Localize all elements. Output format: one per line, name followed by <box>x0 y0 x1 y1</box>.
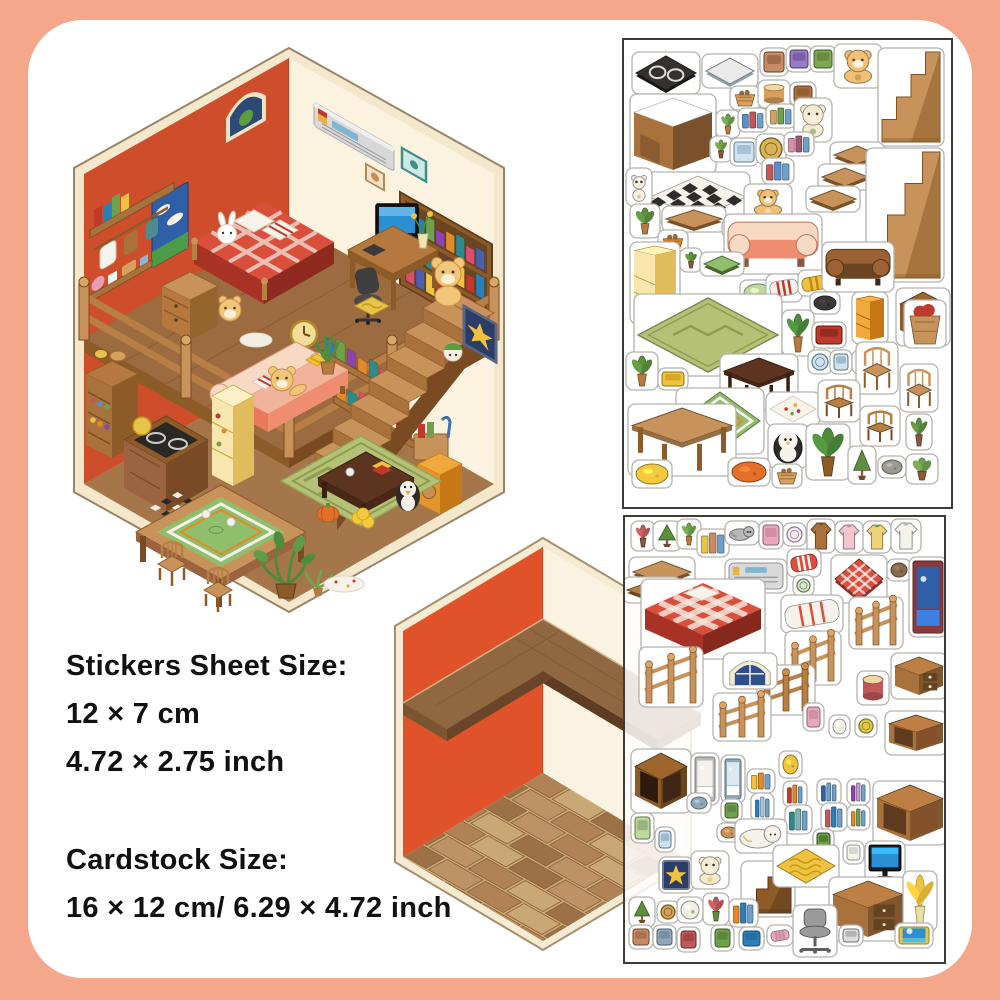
bread <box>95 350 107 358</box>
sticker-girl-sticker <box>691 851 729 889</box>
sticker-red-radio <box>812 322 846 348</box>
frog-hamster <box>444 343 462 361</box>
sticker-drum-stool <box>857 671 889 705</box>
sticker-sheet-2 <box>623 515 946 964</box>
sticker-pink-shirt <box>835 521 863 553</box>
sticker-door-panel <box>721 755 745 803</box>
sticker-kitchen-cabinet <box>630 94 716 174</box>
sticker-vest <box>807 519 835 553</box>
sticker-book-stack <box>766 104 796 128</box>
sticker-sheet-size-inch: 4.72 × 2.75 inch <box>66 746 348 779</box>
sticker-pink-book <box>759 521 783 549</box>
sticker-bunny-doll <box>626 168 652 206</box>
sticker-flower-cup <box>631 521 655 551</box>
sticker-yellow-shirt <box>863 521 891 553</box>
sticker-badge-5 <box>739 927 764 950</box>
sticker-step-plank-3 <box>806 186 860 212</box>
sticker-railing-4 <box>639 646 703 707</box>
sticker-chair-1 <box>856 342 898 394</box>
sticker-long-plank <box>662 206 726 232</box>
sticker-office-chair <box>793 905 837 957</box>
sticker-herb-pot <box>710 136 732 162</box>
sticker-round-badge <box>657 901 679 923</box>
cardstock-size-label: Cardstock Size: <box>66 844 452 877</box>
sticker-badge-4 <box>711 925 734 951</box>
sticker-paper-badge <box>843 841 864 864</box>
sticker-staircase-small <box>878 48 944 146</box>
sticker-pink-books <box>784 132 814 156</box>
sticker-purple-books <box>847 779 870 805</box>
sticker-yellow-cushion <box>632 460 672 488</box>
sticker-railing-1 <box>849 595 903 649</box>
sticker-badge-2 <box>653 925 676 949</box>
sticker-dark-sofa <box>822 242 894 292</box>
sticker-stones <box>878 456 906 478</box>
sticker-pillow-set <box>781 595 843 633</box>
sticker-keyboard-badge <box>839 925 863 946</box>
sticker-chair-2 <box>900 364 938 412</box>
sticker-sheet-size-cm: 12 × 7 cm <box>66 698 348 731</box>
sticker-plant-box <box>906 454 938 484</box>
dining-chair-2 <box>204 568 232 612</box>
sticker-wall-shelf-unit <box>873 781 944 845</box>
yellow-fridge <box>212 385 254 486</box>
sticker-egg <box>829 715 850 738</box>
sticker-duck-badge <box>677 897 703 923</box>
sticker-teddy-bear <box>834 44 882 88</box>
sticker-gray-cat <box>725 521 759 545</box>
floral-blanket <box>324 576 364 592</box>
sticker-badge-3 <box>677 927 700 952</box>
hamster <box>219 296 241 321</box>
sticker-bear-cabinet <box>852 292 888 344</box>
bread-basket <box>110 351 126 361</box>
sticker-green-badge <box>721 799 742 822</box>
sticker-kitchen-sink <box>702 54 758 88</box>
sticker-kitchen-tools <box>730 138 758 166</box>
penguin <box>396 481 420 511</box>
sticker-small-tree <box>848 446 876 484</box>
sticker-glass-jar <box>830 350 852 374</box>
sticker-water-bottle <box>655 827 675 852</box>
sticker-drawer-desk <box>891 653 944 699</box>
sticker-low-bookshelf <box>885 711 944 755</box>
sticker-star-frame <box>659 857 693 893</box>
sticker-yellow-ball <box>855 715 877 737</box>
sticker-planter-box <box>700 252 744 276</box>
sticker-desk-lamp <box>779 751 802 778</box>
sticker-window-poster <box>909 557 944 637</box>
sticker-cube-shelf <box>631 749 691 813</box>
sticker-plant-tall <box>626 352 658 390</box>
sticker-red-books <box>783 781 807 807</box>
sticker-chair-3 <box>818 380 860 422</box>
sticker-leaf-plant <box>806 424 850 480</box>
kettle <box>133 417 151 435</box>
sticker-mini-plant <box>680 248 702 272</box>
sticker-potted-plant <box>630 204 660 238</box>
sticker-coffee-beans <box>810 292 840 314</box>
sticker-pink-jar <box>803 703 824 731</box>
sticker-floral-rug <box>766 392 820 426</box>
sticker-mug-jug <box>808 350 832 374</box>
sticker-mini-tree <box>629 897 655 927</box>
sticker-blue-books-2 <box>751 793 774 821</box>
sticker-mini-books <box>729 899 758 927</box>
sticker-stove-top <box>632 52 700 94</box>
sticker-sheet-size-label: Stickers Sheet Size: <box>66 650 348 683</box>
cardstock-size-value: 16 × 12 cm/ 6.29 × 4.72 inch <box>66 892 452 925</box>
sticker-small-books <box>847 805 870 830</box>
sticker-yellow-books <box>747 769 775 793</box>
page-background: Stickers Sheet Size: 12 × 7 cm 4.72 × 2.… <box>0 0 1000 1000</box>
sticker-jam-jar <box>786 46 812 72</box>
sticker-tea-cup <box>783 523 806 546</box>
sticker-recipe-books <box>738 108 768 132</box>
round-rug <box>240 333 272 347</box>
dresser <box>162 272 218 340</box>
sticker-yellow-book <box>658 368 688 390</box>
sticker-potted-herb <box>906 414 932 450</box>
sticker-book-caddy <box>904 300 946 348</box>
sticker-plant-badge <box>703 893 729 925</box>
sticker-pumpkin <box>728 458 770 486</box>
sticker-teal-books <box>785 805 812 834</box>
sticker-badge-1 <box>629 925 653 949</box>
sticker-blue-books <box>817 779 841 805</box>
sticker-chair-4 <box>860 406 900 446</box>
sticker-snake-plant <box>782 310 814 356</box>
sticker-nut-basket <box>772 464 802 488</box>
sticker-seaside-pic <box>895 923 933 948</box>
sticker-railing-5 <box>713 690 771 741</box>
sticker-bread-basket <box>730 86 760 110</box>
sticker-canned-plant <box>631 813 654 843</box>
sticker-sprout-pot <box>716 110 740 138</box>
sticker-check-pillow <box>787 549 821 577</box>
sticker-green-book <box>810 46 836 72</box>
sticker-arch-window <box>723 653 777 689</box>
sticker-photo-frame <box>760 48 788 76</box>
sticker-flower-vase <box>903 871 937 931</box>
sticker-pink-capsule <box>767 925 793 946</box>
mug <box>346 468 354 476</box>
dining-chair-1 <box>158 542 186 586</box>
sticker-sandwich-books <box>697 529 729 557</box>
sticker-penguin <box>768 424 808 468</box>
sticker-slippers <box>687 793 711 813</box>
sticker-color-books <box>762 158 794 184</box>
sticker-mini-pot <box>887 559 911 581</box>
sticker-sheet-1 <box>622 38 953 509</box>
sticker-white-hoodie <box>891 519 921 553</box>
sticker-multi-books <box>821 803 847 831</box>
sticker-small-cup <box>793 575 814 596</box>
